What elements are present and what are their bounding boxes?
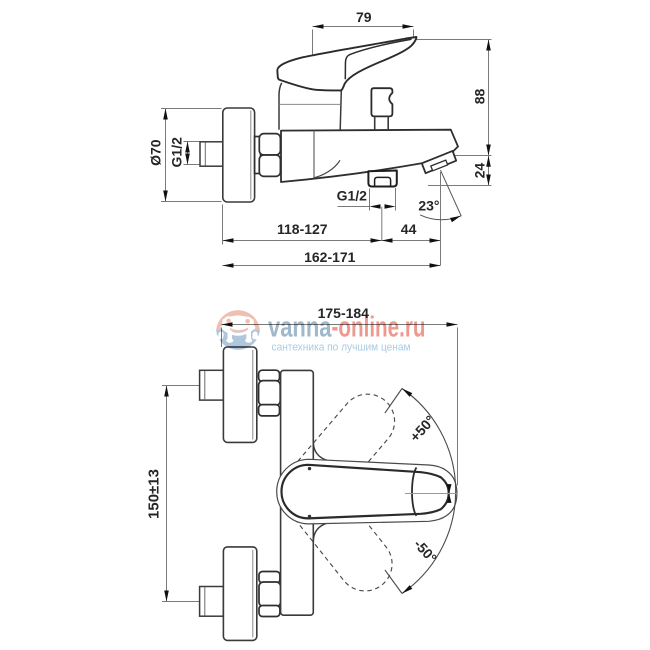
- svg-text:88: 88: [472, 89, 488, 105]
- svg-text:150±13: 150±13: [146, 469, 163, 519]
- svg-text:Ø70: Ø70: [148, 139, 164, 166]
- svg-text:G1/2: G1/2: [169, 137, 185, 168]
- svg-text:-online.ru: -online.ru: [332, 312, 426, 344]
- svg-text:24: 24: [472, 163, 488, 179]
- svg-text:vanna: vanna: [268, 312, 332, 344]
- svg-text:162-171: 162-171: [304, 249, 356, 265]
- svg-text:79: 79: [356, 9, 372, 25]
- svg-text:118-127: 118-127: [277, 221, 328, 237]
- svg-text:сантехника по лучшим ценам: сантехника по лучшим ценам: [272, 342, 411, 354]
- svg-text:23°: 23°: [418, 198, 439, 214]
- svg-text:44: 44: [401, 221, 417, 237]
- svg-text:G1/2: G1/2: [337, 187, 368, 203]
